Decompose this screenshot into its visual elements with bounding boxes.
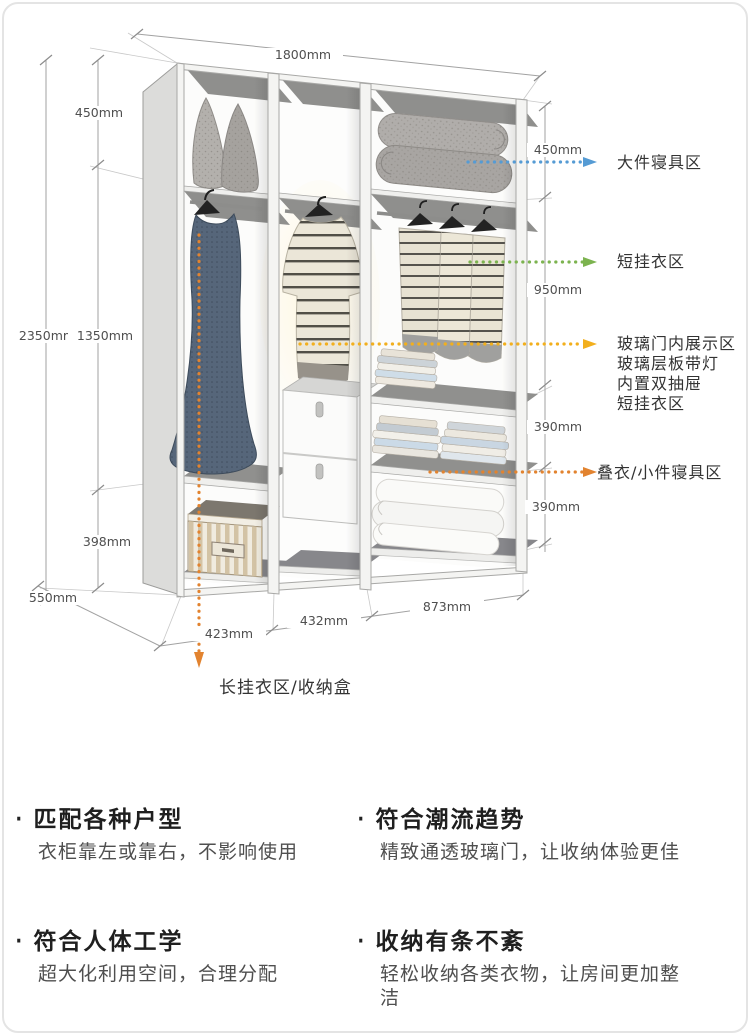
dim-left-bottom: 398mm <box>72 535 142 549</box>
shadow-col2 <box>346 86 360 580</box>
feature-desc: 轻松收纳各类衣物，让房间更加整洁 <box>380 962 696 1010</box>
feature-desc: 超大化利用空间，合理分配 <box>38 962 354 986</box>
feature-title: 符合潮流趋势 <box>376 806 526 834</box>
zone-label-folded: 叠衣/小件寝具区 <box>597 463 722 483</box>
dim-left-mid: 1350mm <box>68 329 142 343</box>
wardrobe-infographic: 1800mm 450mm 2350mm 1350mm 398mm 550mm 4… <box>0 0 750 1035</box>
zone-label-glass-line3: 内置双抽屉 <box>617 374 702 394</box>
zone-label-long-hanging: 长挂衣区/收纳盒 <box>219 678 352 698</box>
feature-title: 符合人体工学 <box>34 928 184 956</box>
feature-title: 匹配各种户型 <box>34 806 184 834</box>
bullet-icon: · <box>356 807 366 833</box>
dim-depth: 550mm <box>18 591 88 605</box>
dim-bottom-col1: 423mm <box>192 627 266 641</box>
bullet-icon: · <box>14 807 24 833</box>
feature-house-type: · 匹配各种户型 衣柜靠左或靠右，不影响使用 <box>14 806 354 864</box>
zone-label-bedding-large: 大件寝具区 <box>617 153 702 173</box>
dim-right-top: 450mm <box>527 143 589 157</box>
white-duvet <box>369 478 507 556</box>
feature-title: 收纳有条不紊 <box>376 928 526 956</box>
dim-top-width: 1800mm <box>263 48 343 62</box>
dim-bottom-col2: 432mm <box>287 614 361 628</box>
dim-right-low2: 390mm <box>525 500 587 514</box>
feature-organized: · 收纳有条不紊 轻松收纳各类衣物，让房间更加整洁 <box>356 928 696 1010</box>
dim-left-top: 450mm <box>62 106 136 120</box>
feature-ergonomics: · 符合人体工学 超大化利用空间，合理分配 <box>14 928 354 986</box>
zone-label-glass-line2: 玻璃层板带灯 <box>617 354 719 374</box>
dim-right-mid: 950mm <box>527 283 589 297</box>
shadow-col1 <box>254 78 268 584</box>
zone-label-short-hanging: 短挂衣区 <box>617 252 685 272</box>
bullet-icon: · <box>14 929 24 955</box>
feature-desc: 衣柜靠左或靠右，不影响使用 <box>38 840 354 864</box>
feature-desc: 精致通透玻璃门，让收纳体验更佳 <box>380 840 696 864</box>
shadow-col3 <box>502 100 516 566</box>
folded-duvets-top <box>375 112 514 194</box>
striped-shirts <box>399 201 505 362</box>
zone-label-glass-line1: 玻璃门内展示区 <box>617 334 736 354</box>
bullet-icon: · <box>356 929 366 955</box>
feature-trend: · 符合潮流趋势 精致通透玻璃门，让收纳体验更佳 <box>356 806 696 864</box>
dim-bottom-col3: 873mm <box>410 600 484 614</box>
dim-right-low1: 390mm <box>527 420 589 434</box>
zone-label-glass-line4: 短挂衣区 <box>617 394 685 414</box>
